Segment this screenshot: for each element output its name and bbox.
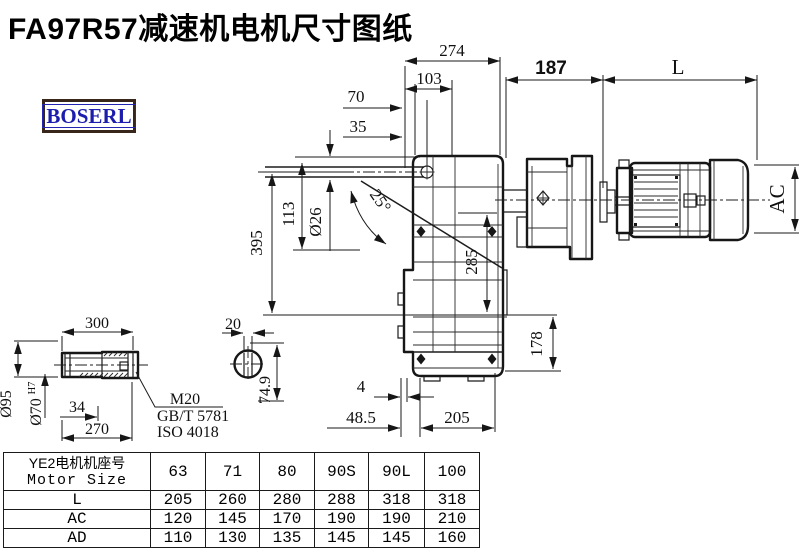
table-cell: 145 xyxy=(315,529,369,548)
dim-AC: AC xyxy=(765,184,789,213)
motor-fin-block xyxy=(632,175,680,227)
table-cell: 280 xyxy=(260,491,315,510)
row-label: AC xyxy=(4,510,151,529)
table-cell: 318 xyxy=(425,491,480,510)
dim-70: 70 xyxy=(348,87,365,106)
dim-angle: 25° xyxy=(366,186,395,216)
dim-48-5: 48.5 xyxy=(346,408,376,427)
table-col-90s: 90S xyxy=(315,453,369,491)
dim-274: 274 xyxy=(439,41,465,60)
table-row-L: L 205 260 280 288 318 318 xyxy=(4,491,480,510)
table-header-en: Motor Size xyxy=(4,472,150,489)
table-cell: 260 xyxy=(206,491,260,510)
dim-270: 270 xyxy=(85,421,109,438)
tapped-hole xyxy=(120,362,128,370)
dim-395: 395 xyxy=(247,230,266,256)
table-cell: 190 xyxy=(369,510,425,529)
dim-34: 34 xyxy=(69,399,85,416)
table-cell: 170 xyxy=(260,510,315,529)
mounting-hole-markers xyxy=(417,226,497,365)
dim-205: 205 xyxy=(444,408,470,427)
dim-key-20: 20 xyxy=(225,316,241,333)
table-col-80: 80 xyxy=(260,453,315,491)
dimensions-top: 274 103 70 35 187 L xyxy=(343,41,757,188)
table-cell: 120 xyxy=(151,510,206,529)
dim-dia95: Ø95 xyxy=(0,390,15,418)
dim-178: 178 xyxy=(527,331,546,357)
dim-dia70: Ø70 xyxy=(28,398,45,426)
standard-iso: ISO 4018 xyxy=(157,424,219,441)
shaft-detail-view: 300 Ø95 Ø70 H7 34 270 M20 GB/T 5781 ISO … xyxy=(0,315,229,441)
thread-spec: M20 xyxy=(170,391,200,408)
table-cell: 110 xyxy=(151,529,206,548)
table-cell: 318 xyxy=(369,491,425,510)
dimensions-bottom: 4 48.5 205 xyxy=(327,373,495,437)
shaft-cross-section: 20 74.9 xyxy=(222,316,284,404)
dim-113: 113 xyxy=(279,202,298,227)
drawing-page: FA97R57减速机电机尺寸图纸 BOSERL xyxy=(0,0,800,555)
table-cell: 145 xyxy=(206,510,260,529)
row-label: AD xyxy=(4,529,151,548)
table-cell: 145 xyxy=(369,529,425,548)
dim-35: 35 xyxy=(350,117,367,136)
dim-fit-h7: H7 xyxy=(27,382,38,395)
table-cell: 160 xyxy=(425,529,480,548)
table-cell: 190 xyxy=(315,510,369,529)
table-header-row: YE2电机机座号 Motor Size 63 71 80 90S 90L 100 xyxy=(4,453,480,491)
dim-4: 4 xyxy=(357,377,366,396)
table-col-100: 100 xyxy=(425,453,480,491)
dim-300: 300 xyxy=(85,315,109,332)
dim-103: 103 xyxy=(416,69,442,88)
dimensions-left: 395 113 Ø26 25° 285 178 AC xyxy=(247,130,799,371)
table-cell: 130 xyxy=(206,529,260,548)
table-row-AD: AD 110 130 135 145 145 160 xyxy=(4,529,480,548)
dim-187: 187 xyxy=(535,58,567,79)
thread-hatch xyxy=(79,352,128,377)
table-cell: 205 xyxy=(151,491,206,510)
dim-L: L xyxy=(672,55,685,79)
table-header-cell: YE2电机机座号 Motor Size xyxy=(4,453,151,491)
dim-hole-dia: Ø26 xyxy=(306,207,325,236)
table-col-90l: 90L xyxy=(369,453,425,491)
table-cell: 135 xyxy=(260,529,315,548)
dim-74-9: 74.9 xyxy=(257,376,274,404)
dim-285: 285 xyxy=(462,249,481,275)
table-row-AC: AC 120 145 170 190 190 210 xyxy=(4,510,480,529)
input-adapter xyxy=(503,156,592,259)
table-cell: 288 xyxy=(315,491,369,510)
motor-fins xyxy=(634,182,678,217)
table-cell: 210 xyxy=(425,510,480,529)
row-label: L xyxy=(4,491,151,510)
table-header-cn: YE2电机机座号 xyxy=(4,454,150,472)
motor-size-table: YE2电机机座号 Motor Size 63 71 80 90S 90L 100… xyxy=(3,452,480,548)
table-col-71: 71 xyxy=(206,453,260,491)
standard-gb: GB/T 5781 xyxy=(157,408,229,425)
table-col-63: 63 xyxy=(151,453,206,491)
